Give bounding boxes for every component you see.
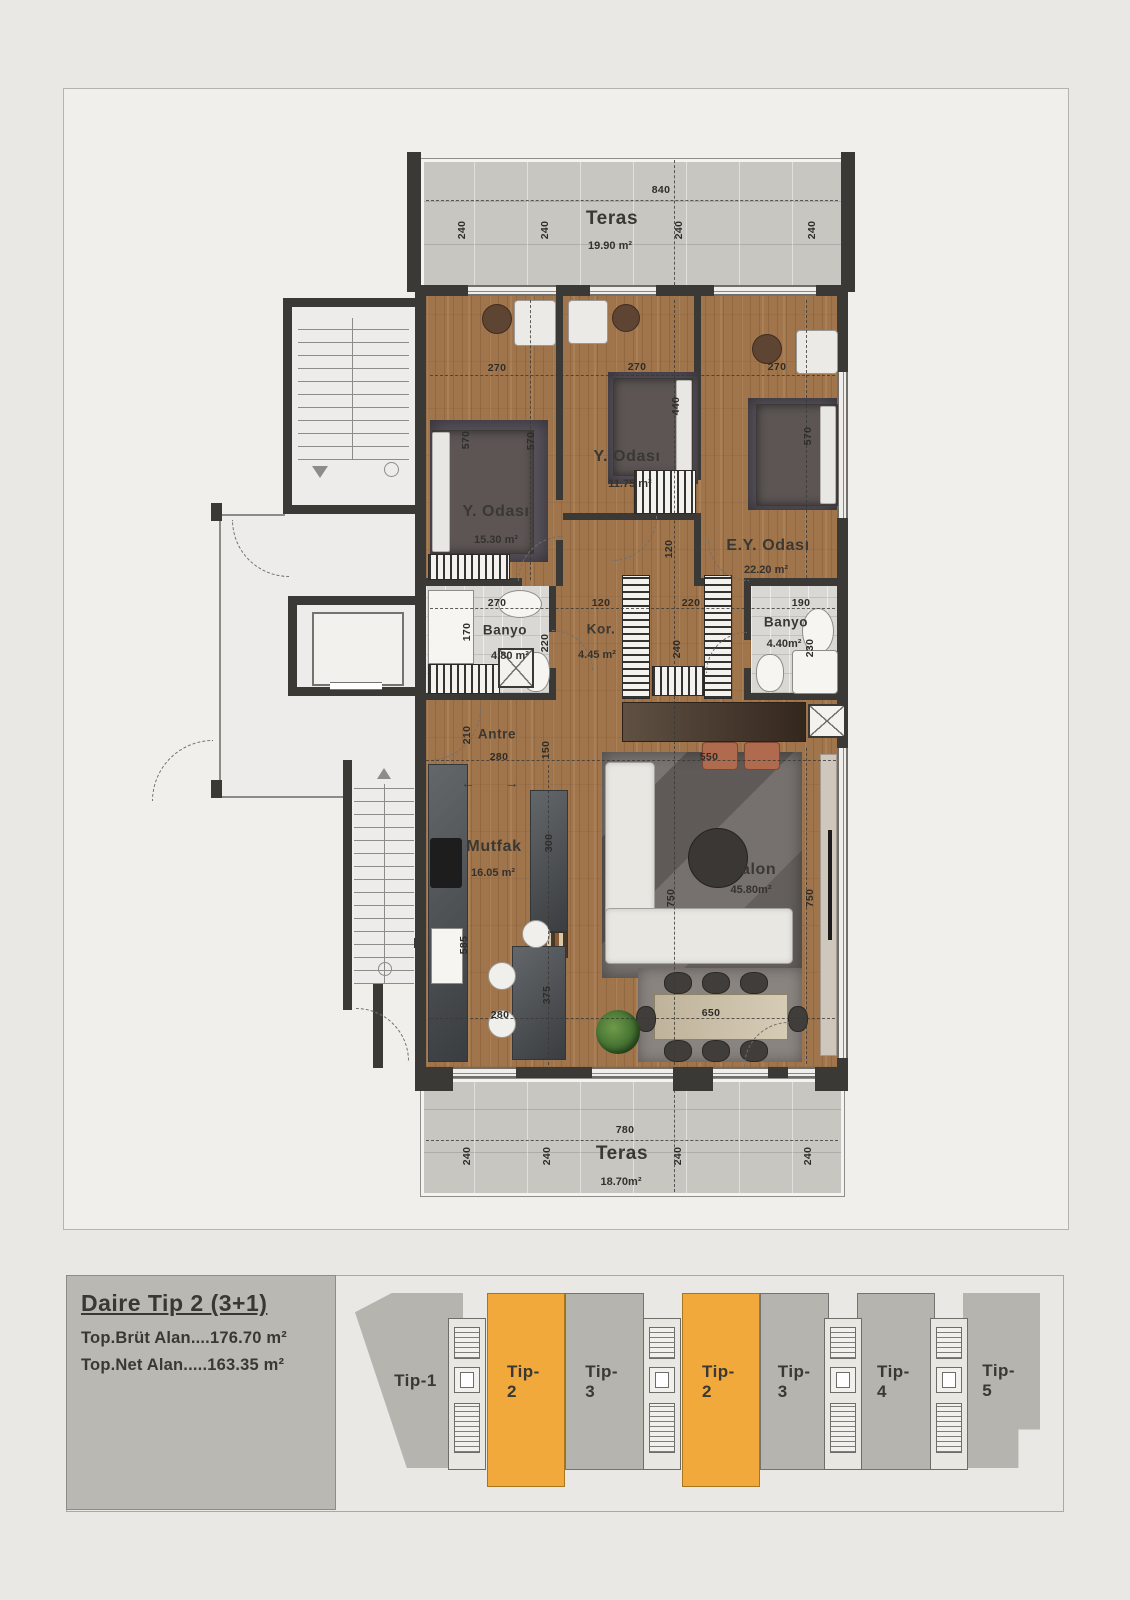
core-stairs-icon xyxy=(454,1403,480,1453)
bench xyxy=(652,666,704,696)
tv-screen xyxy=(828,830,832,940)
chair xyxy=(522,920,550,948)
elevator-door xyxy=(330,682,382,690)
core-stairs-icon xyxy=(936,1327,962,1359)
dim-280: 280 xyxy=(491,1009,509,1021)
bed-pillows xyxy=(676,380,692,474)
wall-segment xyxy=(211,503,222,521)
core-stairs-icon xyxy=(649,1403,675,1453)
dim-120: 120 xyxy=(592,597,610,609)
dim-550: 550 xyxy=(700,751,718,763)
stair-direction-arrow xyxy=(377,768,391,779)
dim-570: 570 xyxy=(460,431,472,449)
dim-585: 585 xyxy=(458,936,470,954)
kitchen-island xyxy=(530,790,568,932)
wall-pier xyxy=(815,1067,848,1091)
chair xyxy=(664,972,692,994)
stairwell-wall xyxy=(343,760,352,1010)
stair-post xyxy=(384,462,399,477)
dim-240: 240 xyxy=(456,221,468,239)
keyplan-core xyxy=(448,1318,486,1470)
room-name-teras-bottom: Teras xyxy=(596,1143,648,1165)
armchair xyxy=(796,330,838,374)
core-stairs-icon xyxy=(454,1327,480,1359)
salon-glass-wall xyxy=(837,748,848,1058)
keyplan-unit-tip2b: Tip-2 xyxy=(682,1293,760,1487)
stair-stringer xyxy=(352,318,353,460)
dim-780: 780 xyxy=(616,1124,634,1136)
unit-label: Tip-2 xyxy=(507,1362,545,1402)
core-elevator-icon xyxy=(936,1367,962,1393)
stair-post xyxy=(378,962,392,976)
room-name-bd2: Y. Odası xyxy=(593,448,660,466)
legend-net-area: Top.Net Alan.....163.35 m² xyxy=(81,1356,323,1375)
armchair xyxy=(568,300,608,344)
room-area-kor: 4.45 m² xyxy=(578,649,616,661)
core-stairs-icon xyxy=(830,1403,856,1453)
dim-line xyxy=(430,375,835,376)
wardrobe xyxy=(428,554,510,580)
stair-stringer xyxy=(384,784,385,984)
wall-corridor-master xyxy=(694,513,701,586)
keyplan-unit-tip3b: Tip-3 xyxy=(760,1293,829,1470)
lobby-wall xyxy=(219,514,285,516)
wall-banyo-left-bottom xyxy=(426,693,556,700)
dim-line xyxy=(548,765,549,1065)
stairwell-wall xyxy=(283,298,415,307)
dim-240: 240 xyxy=(461,1147,473,1165)
window xyxy=(714,285,816,296)
room-area-banyo-left: 4.80 m² xyxy=(491,650,529,662)
room-name-banyo-left: Banyo xyxy=(483,623,527,638)
stair-treads xyxy=(298,318,409,460)
armchair xyxy=(514,300,556,346)
dim-line xyxy=(674,160,675,285)
elevator-cab xyxy=(312,612,404,686)
stairwell-wall xyxy=(283,505,415,514)
dim-240: 240 xyxy=(541,1147,553,1165)
wardrobe xyxy=(622,575,650,699)
chair xyxy=(788,1006,808,1032)
wall-bd1-bd2 xyxy=(556,296,563,500)
core-stairs-icon xyxy=(936,1403,962,1453)
legend: Daire Tip 2 (3+1) Top.Brüt Alan....176.7… xyxy=(66,1275,336,1510)
stair-direction-arrow xyxy=(312,466,328,478)
dim-210: 210 xyxy=(461,726,473,744)
dim-240: 240 xyxy=(671,640,683,658)
core-stairs-icon xyxy=(830,1327,856,1359)
chair xyxy=(702,972,730,994)
bed-pillows xyxy=(820,406,836,504)
dim-170: 170 xyxy=(461,623,473,641)
room-name-banyo-right: Banyo xyxy=(764,615,808,630)
wall-pier xyxy=(415,1067,453,1091)
keyplan-core xyxy=(824,1318,862,1470)
room-area-salon: 45.80m² xyxy=(731,884,772,896)
dim-270: 270 xyxy=(488,597,506,609)
room-name-mutfak: Mutfak xyxy=(466,838,521,856)
toilet xyxy=(756,654,784,692)
chair xyxy=(664,1040,692,1062)
stairwell-wall xyxy=(283,298,292,514)
keyplan-core xyxy=(643,1318,681,1470)
elevator-wall xyxy=(288,596,297,696)
unit-label: Tip-4 xyxy=(877,1362,915,1402)
core-stairs-icon xyxy=(649,1327,675,1359)
unit-label: Tip-3 xyxy=(778,1362,812,1402)
core-elevator-icon xyxy=(454,1367,480,1393)
room-area-bd1: 15.30 m² xyxy=(474,534,518,546)
room-name-salon: Salon xyxy=(730,861,777,879)
floor-plan-page: Teras 19.90 m² 840 240 240 240 240 xyxy=(0,0,1130,1600)
room-name-antre: Antre xyxy=(478,727,516,742)
dim-150: 150 xyxy=(540,741,552,759)
room-area-bd2: 11.75 m² xyxy=(608,478,651,490)
core-elevator-icon xyxy=(649,1367,675,1393)
dim-240: 240 xyxy=(806,221,818,239)
window xyxy=(837,372,848,518)
wall-master-bottom xyxy=(744,578,837,586)
balcony-door xyxy=(452,1067,516,1078)
wall-segment xyxy=(841,152,855,292)
dim-220: 220 xyxy=(539,634,551,652)
corner-sofa xyxy=(605,908,793,964)
sliding-door-arrow-right: → xyxy=(506,776,519,791)
wall-left xyxy=(415,285,426,1078)
keyplan-unit-tip2a: Tip-2 xyxy=(487,1293,565,1487)
room-name-kor: Kor. xyxy=(587,622,616,637)
wardrobe xyxy=(634,470,696,514)
bed-pillows xyxy=(432,432,450,552)
wall-segment xyxy=(407,152,421,292)
keyplan-core xyxy=(930,1318,968,1470)
room-area-teras-bottom: 18.70m² xyxy=(601,1176,642,1188)
tv-unit xyxy=(622,702,806,742)
dim-230: 230 xyxy=(804,639,816,657)
cooktop xyxy=(430,838,462,888)
dim-750: 750 xyxy=(665,889,677,907)
dim-line xyxy=(674,1080,675,1192)
side-table xyxy=(752,334,782,364)
room-name-teras-top: Teras xyxy=(586,208,638,230)
window xyxy=(468,285,556,296)
window xyxy=(590,285,656,296)
dim-300: 300 xyxy=(543,834,555,852)
dim-120: 120 xyxy=(663,540,675,558)
room-name-bd1: Y. Odası xyxy=(462,503,529,521)
dim-840: 840 xyxy=(652,184,670,196)
dim-270: 270 xyxy=(628,361,646,373)
dim-750: 750 xyxy=(804,889,816,907)
unit-label: Tip-1 xyxy=(394,1371,437,1391)
dim-280: 280 xyxy=(490,751,508,763)
dim-375: 375 xyxy=(541,986,553,1004)
coffee-table xyxy=(688,828,748,888)
keyplan-unit-tip4: Tip-4 xyxy=(857,1293,935,1470)
wall-pier xyxy=(673,1067,713,1091)
dim-line xyxy=(426,200,838,201)
plant xyxy=(596,1010,640,1054)
dim-line xyxy=(426,760,836,761)
dim-240: 240 xyxy=(539,221,551,239)
legend-title: Daire Tip 2 (3+1) xyxy=(81,1290,323,1317)
dim-570: 570 xyxy=(802,427,814,445)
lobby-wall xyxy=(219,796,349,798)
unit-label: Tip-3 xyxy=(585,1362,624,1402)
chair xyxy=(702,1040,730,1062)
dim-440: 440 xyxy=(670,397,682,415)
legend-gross-area: Top.Brüt Alan....176.70 m² xyxy=(81,1329,323,1348)
room-area-master: 22.20 m² xyxy=(744,564,788,576)
wardrobe xyxy=(428,664,500,694)
unit-label: Tip-5 xyxy=(982,1361,1021,1401)
wall-banyo-left xyxy=(549,586,556,632)
side-table xyxy=(612,304,640,332)
dim-220: 220 xyxy=(682,597,700,609)
chair xyxy=(740,972,768,994)
core-elevator-icon xyxy=(830,1367,856,1393)
room-area-mutfak: 16.05 m² xyxy=(471,867,515,879)
room-name-master: E.Y. Odası xyxy=(726,537,809,555)
accent-chair xyxy=(744,742,780,770)
lobby-wall xyxy=(219,514,221,798)
dim-240: 240 xyxy=(802,1147,814,1165)
dim-line xyxy=(426,1140,838,1141)
side-table xyxy=(482,304,512,334)
dim-570: 570 xyxy=(525,432,537,450)
chair xyxy=(488,962,516,990)
dim-190: 190 xyxy=(792,597,810,609)
sliding-door-arrow-left: ← xyxy=(462,776,475,791)
dim-270: 270 xyxy=(768,361,786,373)
room-area-teras-top: 19.90 m² xyxy=(588,240,632,252)
kitchen-table xyxy=(512,946,566,1060)
shaft xyxy=(808,704,846,738)
dim-650: 650 xyxy=(702,1007,720,1019)
elevator-wall xyxy=(288,596,418,605)
unit-label: Tip-2 xyxy=(702,1362,740,1402)
wall-banyo-right-bottom xyxy=(744,693,837,700)
dim-270: 270 xyxy=(488,362,506,374)
keyplan-unit-tip3a: Tip-3 xyxy=(565,1293,644,1470)
room-area-banyo-right: 4.40m² xyxy=(767,638,802,650)
